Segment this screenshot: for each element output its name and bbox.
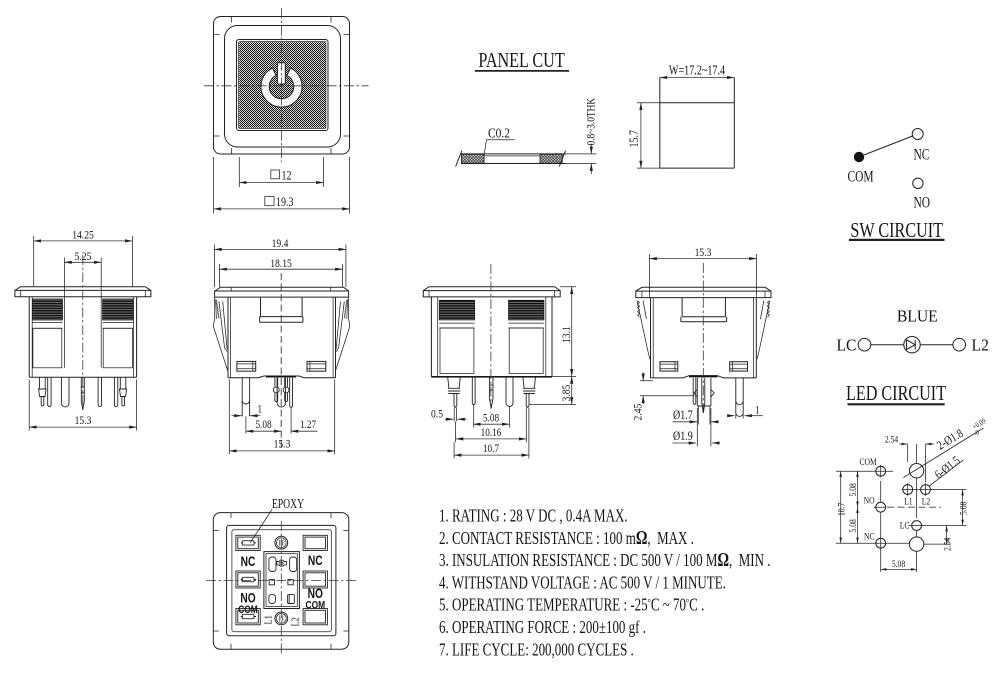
svg-text:12: 12 [282, 170, 292, 183]
svg-text:2.45: 2.45 [632, 404, 645, 421]
svg-text:6. OPERATING FORCE : 200±100 g: 6. OPERATING FORCE : 200±100 gf . [439, 618, 646, 637]
svg-text:19.3: 19.3 [276, 196, 294, 209]
svg-text:COM: COM [238, 604, 258, 617]
svg-text:Ø1.9: Ø1.9 [673, 430, 693, 443]
svg-text:2. CONTACT RESISTANCE : 100 mΩ: 2. CONTACT RESISTANCE : 100 mΩ, MAX . [439, 525, 694, 548]
svg-text:L1: L1 [264, 615, 275, 625]
svg-text:5.08: 5.08 [958, 502, 969, 515]
svg-text:NC: NC [241, 553, 256, 569]
svg-text:13.1: 13.1 [560, 326, 573, 343]
svg-text:COM: COM [306, 599, 326, 612]
svg-text:15.3: 15.3 [695, 246, 712, 259]
svg-text:W=17.2~17.4: W=17.2~17.4 [669, 62, 725, 78]
svg-text:NC: NC [864, 531, 875, 542]
svg-text:10.7: 10.7 [836, 502, 847, 516]
svg-text:NC: NC [308, 552, 323, 568]
svg-text:18.15: 18.15 [270, 257, 292, 270]
svg-text:7. LIFE CYCLE: 200,000 CYCLES: 7. LIFE CYCLE: 200,000 CYCLES . [439, 640, 634, 659]
svg-text:3.85: 3.85 [560, 385, 573, 402]
svg-text:EPOXY: EPOXY [272, 497, 305, 512]
svg-text:2.54: 2.54 [885, 433, 899, 444]
svg-text:15.3: 15.3 [274, 438, 291, 451]
svg-text:10.7: 10.7 [483, 443, 499, 455]
svg-text:+0.09: +0.09 [971, 417, 987, 431]
svg-text:5.08: 5.08 [255, 419, 271, 431]
svg-text:15.7: 15.7 [628, 130, 641, 148]
svg-text:0.8~3.0THK: 0.8~3.0THK [584, 98, 597, 146]
svg-text:COM: COM [848, 168, 874, 185]
svg-text:2.54: 2.54 [942, 537, 953, 551]
svg-text:19.4: 19.4 [272, 237, 289, 250]
svg-text:L1: L1 [904, 496, 912, 507]
svg-text:4. WITHSTAND VOLTAGE : AC 500: 4. WITHSTAND VOLTAGE : AC 500 V / 1 MINU… [439, 573, 726, 592]
svg-text:L2: L2 [291, 617, 302, 627]
svg-text:3. INSULATION RESISTANCE : DC: 3. INSULATION RESISTANCE : DC 500 V / 10… [439, 548, 770, 571]
svg-text:5.08: 5.08 [847, 483, 858, 496]
svg-text:LC: LC [900, 520, 910, 531]
svg-text:2-Ø1.8: 2-Ø1.8 [935, 427, 966, 453]
svg-text:6-Ø1.5: 6-Ø1.5 [933, 454, 963, 482]
svg-text:NO: NO [914, 194, 931, 211]
svg-text:5. OPERATING TEMPERATURE : -25: 5. OPERATING TEMPERATURE : -25°C ~ 70°C … [439, 596, 704, 615]
svg-text:1: 1 [755, 405, 760, 417]
svg-text:LED CIRCUIT: LED CIRCUIT [846, 382, 947, 406]
svg-text:LC: LC [836, 337, 856, 354]
svg-text:5.08: 5.08 [483, 413, 499, 425]
svg-text:5.08: 5.08 [892, 558, 905, 569]
svg-text:COM: COM [859, 456, 877, 467]
svg-text:15.3: 15.3 [75, 414, 92, 427]
svg-text:5.08: 5.08 [847, 519, 858, 532]
svg-text:0.5: 0.5 [431, 408, 443, 421]
svg-text:PANEL CUT: PANEL CUT [478, 49, 565, 73]
svg-text:14.25: 14.25 [72, 229, 94, 242]
svg-text:Ø1.7: Ø1.7 [673, 409, 693, 422]
svg-text:1.27: 1.27 [300, 419, 316, 431]
svg-text:BLUE: BLUE [897, 308, 938, 325]
svg-text:NO: NO [864, 495, 875, 506]
svg-text:10.16: 10.16 [481, 427, 502, 439]
svg-text:L2: L2 [972, 337, 989, 354]
svg-text:L2: L2 [922, 496, 930, 507]
svg-text:C0.2: C0.2 [488, 126, 510, 141]
svg-text:1. RATING : 28 V DC , 0.4A MAX: 1. RATING : 28 V DC , 0.4A MAX. [439, 507, 628, 526]
svg-text:NC: NC [914, 146, 930, 163]
svg-text:1: 1 [258, 404, 263, 416]
